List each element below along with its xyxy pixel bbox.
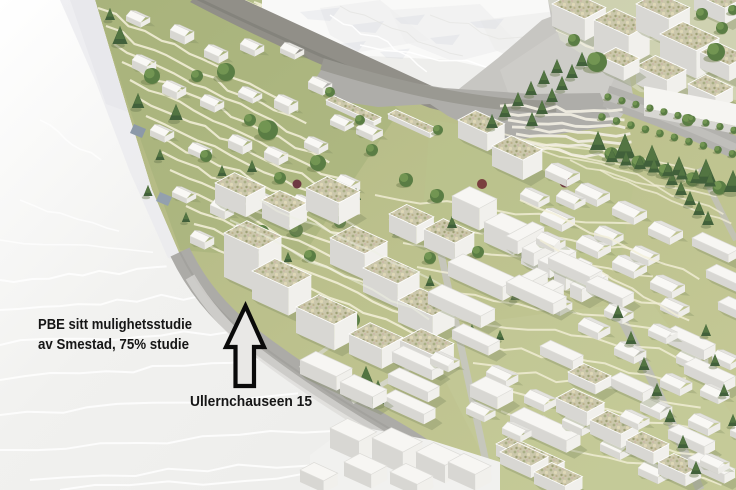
svg-text:av Smestad, 75% studie: av Smestad, 75% studie — [38, 336, 189, 353]
svg-text:PBE sitt mulighetsstudie: PBE sitt mulighetsstudie — [38, 316, 192, 333]
svg-text:Ullernchauseen 15: Ullernchauseen 15 — [190, 393, 312, 410]
